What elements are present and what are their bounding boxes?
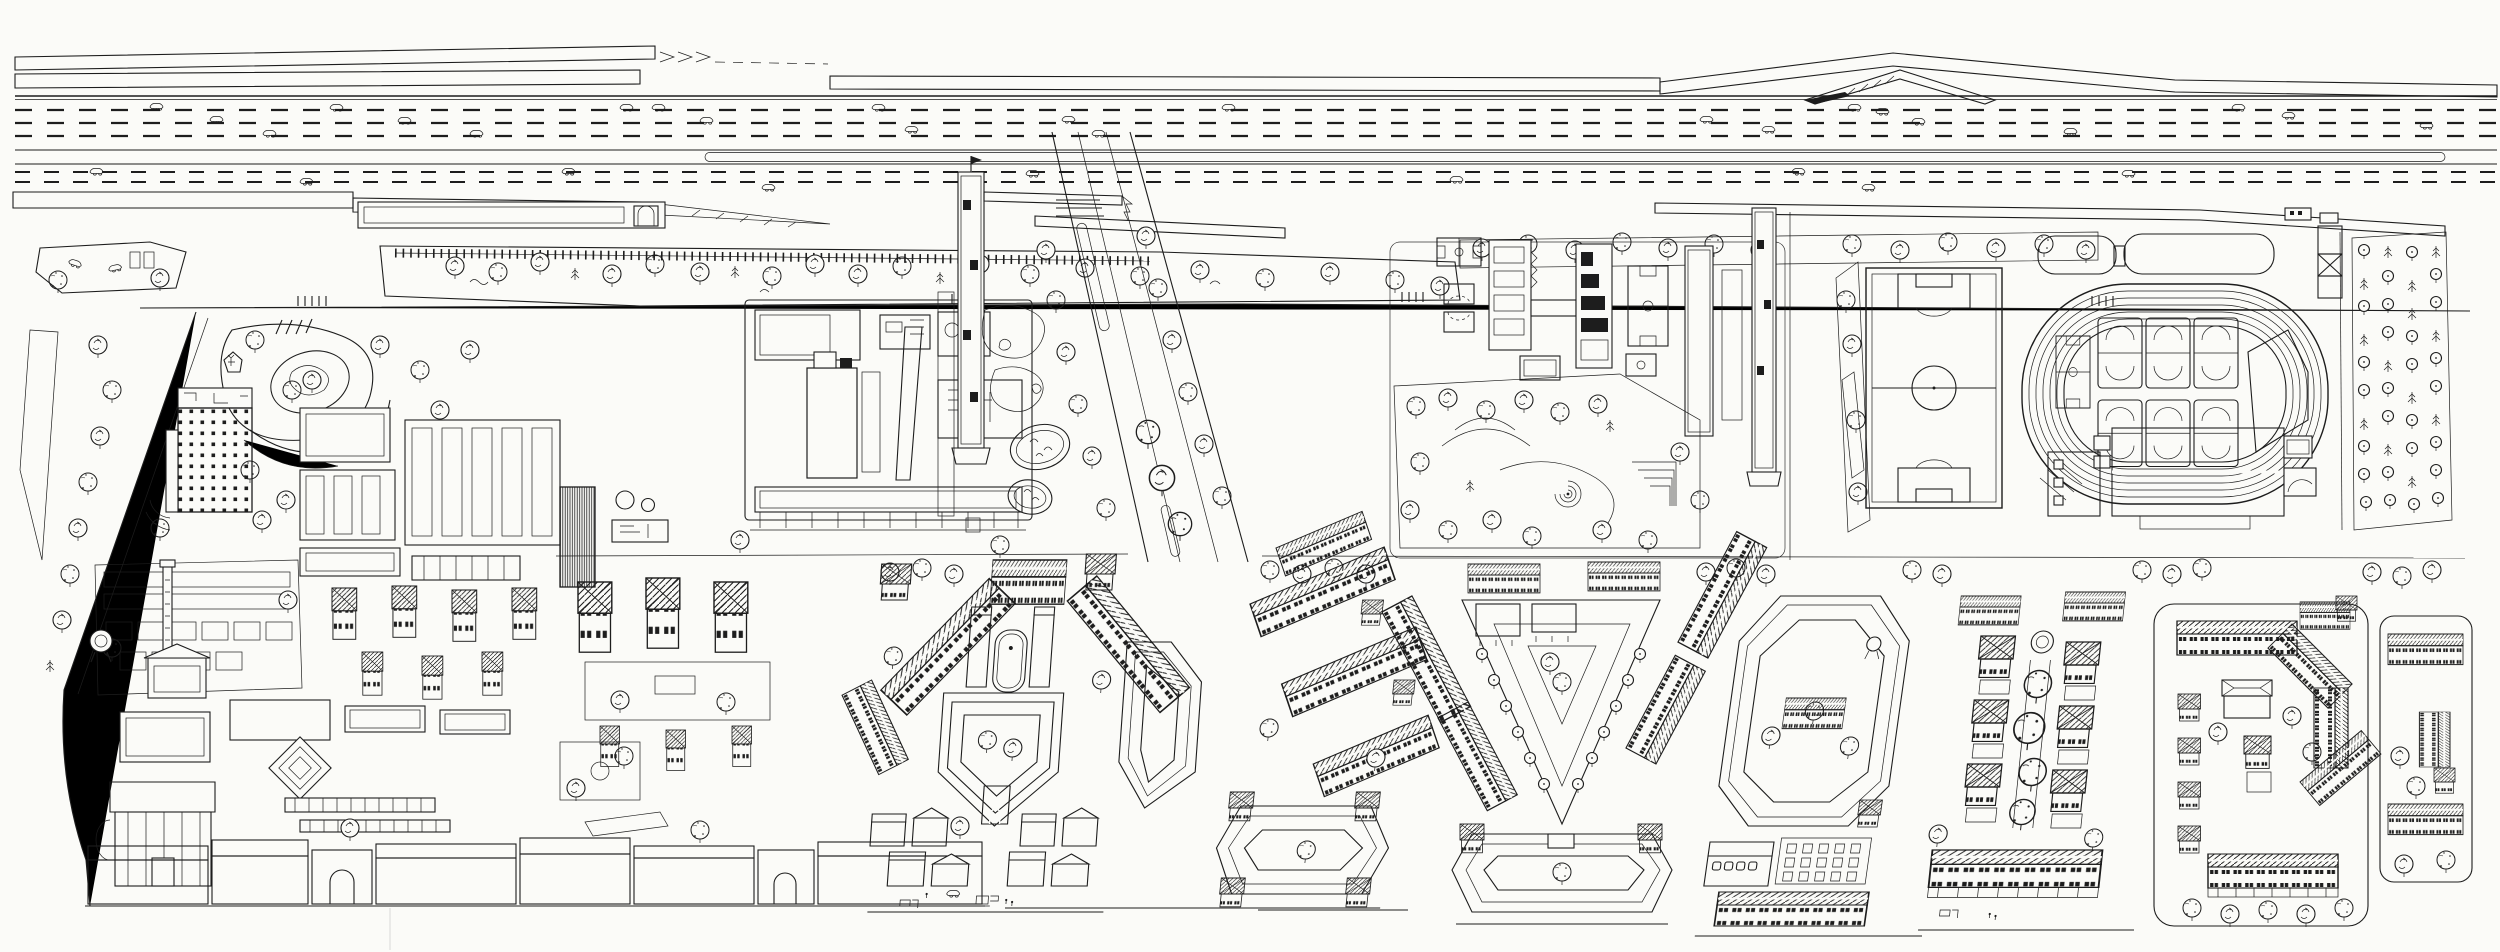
- school-building-2: [1576, 244, 1612, 368]
- low-depot-building: [358, 202, 665, 228]
- city-drawing: [0, 0, 2500, 952]
- drawing-sheet: [0, 0, 2500, 952]
- school-building-1: [1489, 240, 1537, 350]
- shed: [120, 712, 210, 762]
- watchtower: [952, 156, 990, 464]
- classroom-wing: [1685, 246, 1713, 436]
